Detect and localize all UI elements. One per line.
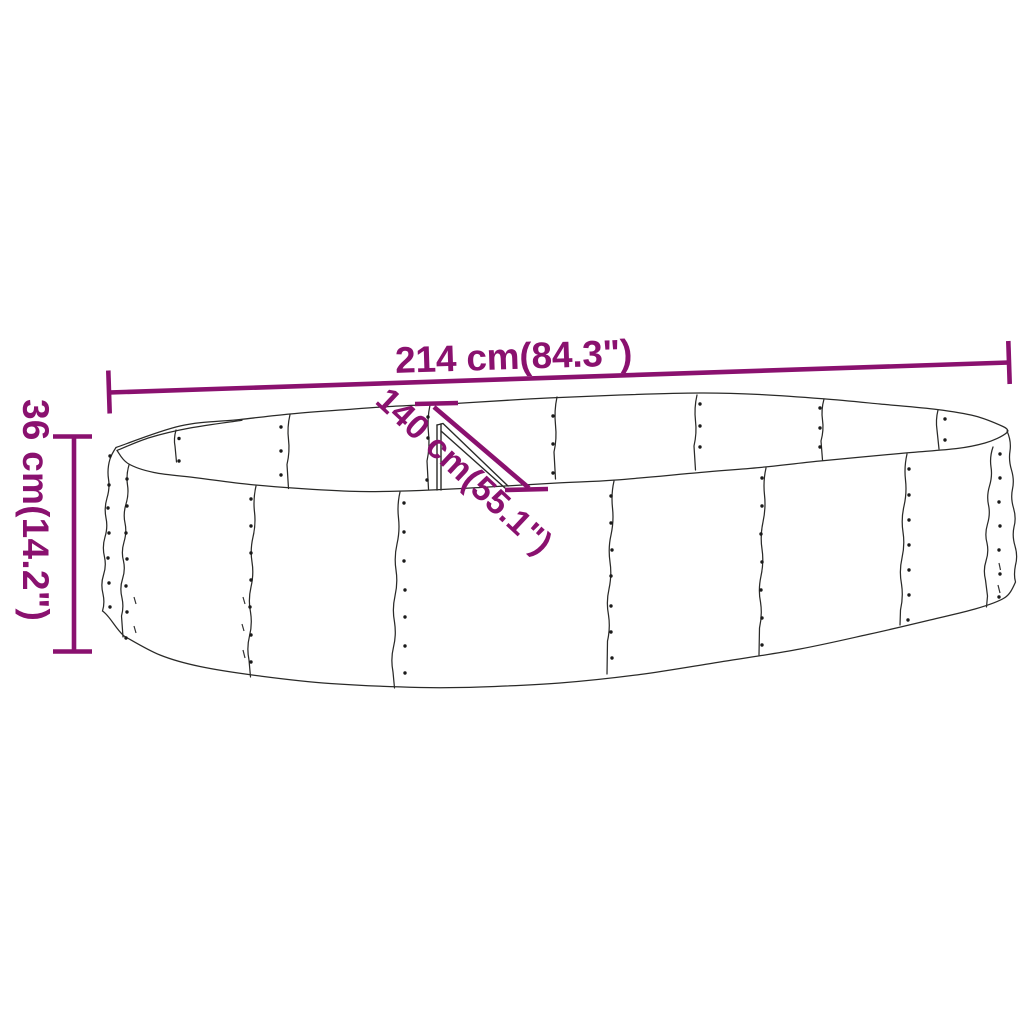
- svg-text:214 cm(84.3"): 214 cm(84.3"): [394, 332, 632, 381]
- svg-text:36 cm(14.2"): 36 cm(14.2"): [15, 399, 56, 621]
